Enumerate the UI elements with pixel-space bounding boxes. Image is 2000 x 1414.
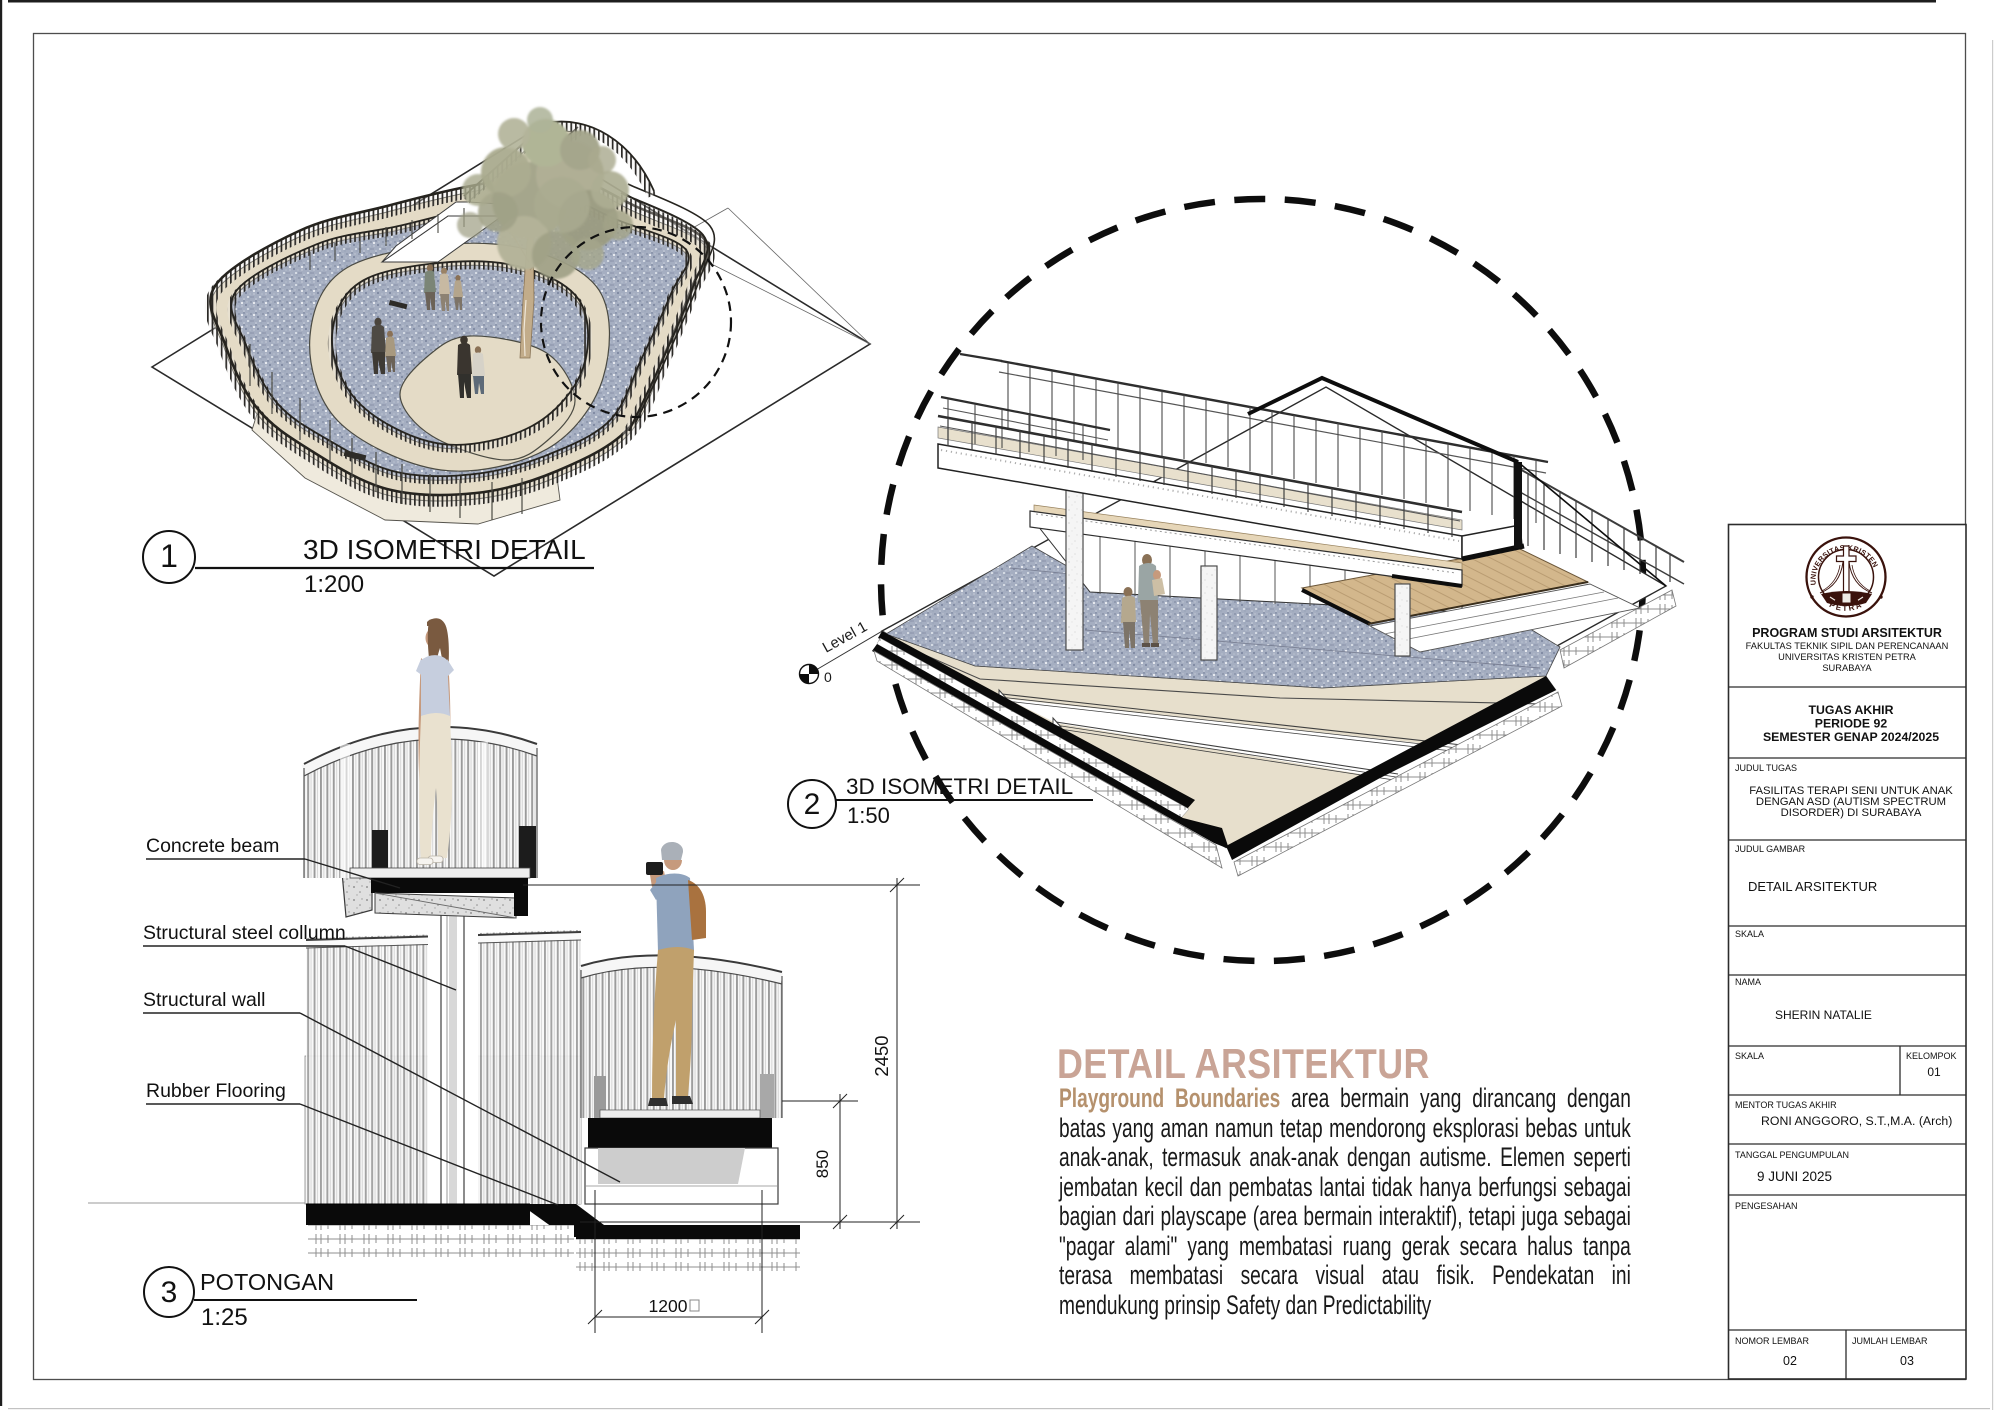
svg-text:2450: 2450 — [871, 1035, 892, 1076]
svg-text:SURABAYA: SURABAYA — [1822, 663, 1872, 673]
svg-text:PENGESAHAN: PENGESAHAN — [1735, 1201, 1798, 1211]
svg-text:JUDUL GAMBAR: JUDUL GAMBAR — [1735, 844, 1806, 854]
svg-text:01: 01 — [1927, 1065, 1941, 1079]
svg-text:2: 2 — [804, 788, 821, 821]
svg-text:NAMA: NAMA — [1735, 977, 1761, 987]
svg-text:1: 1 — [160, 538, 178, 574]
svg-text:0: 0 — [824, 669, 832, 685]
svg-text:TUGAS AKHIR: TUGAS AKHIR — [1809, 703, 1894, 717]
svg-text:FAKULTAS TEKNIK SIPIL DAN PERE: FAKULTAS TEKNIK SIPIL DAN PERENCANAAN — [1746, 641, 1949, 651]
svg-text:Structural wall: Structural wall — [143, 989, 265, 1011]
svg-text:Level 1: Level 1 — [820, 618, 871, 656]
svg-text:1:25: 1:25 — [201, 1304, 248, 1331]
svg-text:1:200: 1:200 — [304, 571, 364, 598]
svg-text:Concrete beam: Concrete beam — [146, 835, 279, 857]
svg-text:3: 3 — [161, 1276, 178, 1309]
svg-text:DISORDER) DI SURABAYA: DISORDER) DI SURABAYA — [1781, 807, 1922, 819]
svg-text:RONI ANGGORO, S.T.,M.A. (Arch): RONI ANGGORO, S.T.,M.A. (Arch) — [1761, 1114, 1952, 1128]
svg-text:UNIVERSITAS KRISTEN PETRA: UNIVERSITAS KRISTEN PETRA — [1778, 652, 1917, 662]
svg-text:JUDUL TUGAS: JUDUL TUGAS — [1735, 763, 1797, 773]
svg-text:850: 850 — [813, 1150, 832, 1178]
svg-text:DETAIL ARSITEKTUR: DETAIL ARSITEKTUR — [1748, 879, 1877, 894]
svg-text:3D ISOMETRI DETAIL: 3D ISOMETRI DETAIL — [846, 774, 1073, 799]
svg-text:TANGGAL PENGUMPULAN: TANGGAL PENGUMPULAN — [1735, 1150, 1849, 1160]
svg-text:3D ISOMETRI DETAIL: 3D ISOMETRI DETAIL — [303, 534, 586, 565]
svg-text:PROGRAM STUDI ARSITEKTUR: PROGRAM STUDI ARSITEKTUR — [1752, 626, 1942, 640]
svg-text:03: 03 — [1900, 1354, 1914, 1368]
svg-text:SEMESTER GENAP 2024/2025: SEMESTER GENAP 2024/2025 — [1763, 730, 1939, 744]
svg-text:SHERIN NATALIE: SHERIN NATALIE — [1775, 1008, 1872, 1022]
svg-text:JUMLAH LEMBAR: JUMLAH LEMBAR — [1852, 1336, 1928, 1346]
svg-text:MENTOR TUGAS AKHIR: MENTOR TUGAS AKHIR — [1735, 1100, 1837, 1110]
svg-text:1200: 1200 — [649, 1296, 688, 1316]
svg-text:9 JUNI 2025: 9 JUNI 2025 — [1757, 1169, 1832, 1184]
svg-text:SKALA: SKALA — [1735, 929, 1764, 939]
svg-text:SKALA: SKALA — [1735, 1051, 1764, 1061]
svg-text:NOMOR LEMBAR: NOMOR LEMBAR — [1735, 1336, 1810, 1346]
svg-text:PERIODE 92: PERIODE 92 — [1815, 717, 1888, 731]
svg-text:KELOMPOK: KELOMPOK — [1906, 1051, 1957, 1061]
svg-text:02: 02 — [1783, 1354, 1797, 1368]
svg-text:POTONGAN: POTONGAN — [200, 1269, 334, 1295]
svg-text:1:50: 1:50 — [847, 803, 890, 828]
svg-text:Rubber Flooring: Rubber Flooring — [146, 1080, 286, 1102]
svg-text:Structural steel collumn: Structural steel collumn — [143, 922, 346, 944]
